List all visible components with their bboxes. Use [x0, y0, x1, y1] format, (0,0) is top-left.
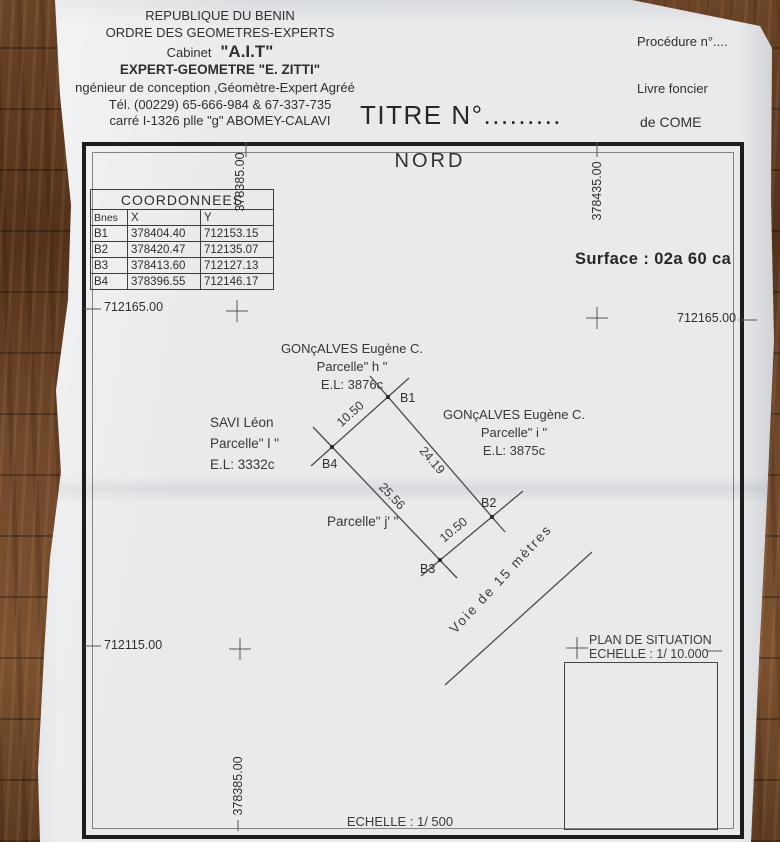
dim-b3-b2: 10.50 — [437, 515, 470, 546]
corner-point-b2 — [490, 515, 494, 519]
main-scale-label: ECHELLE : 1/ 500 — [330, 814, 470, 829]
road-label: Voie de 15 mètres — [447, 522, 555, 637]
situation-title: PLAN DE SITUATION — [589, 633, 712, 647]
parcel-side-b4-b3 — [313, 427, 457, 578]
parcel-side-b4-b1 — [311, 378, 409, 466]
corner-point-b4 — [330, 445, 334, 449]
situation-scale: ECHELLE : 1/ 10.000 — [589, 647, 709, 661]
grid-cross — [226, 300, 248, 322]
situation-inset-box — [564, 662, 718, 830]
corner-label-b2: B2 — [481, 496, 496, 510]
dim-b4-b1: 10.50 — [334, 398, 367, 429]
paper-sheet: REPUBLIQUE DU BENIN ORDRE DES GEOMETRES-… — [0, 0, 780, 842]
grid-cross — [229, 638, 251, 660]
dim-b4-b3: 25.56 — [376, 480, 408, 512]
corner-label-b3: B3 — [420, 562, 435, 576]
corner-label-b4: B4 — [322, 457, 337, 471]
grid-cross — [586, 307, 608, 329]
corner-label-b1: B1 — [400, 391, 415, 405]
grid-cross — [566, 637, 588, 659]
corner-point-b3 — [438, 558, 442, 562]
corner-point-b1 — [386, 395, 390, 399]
